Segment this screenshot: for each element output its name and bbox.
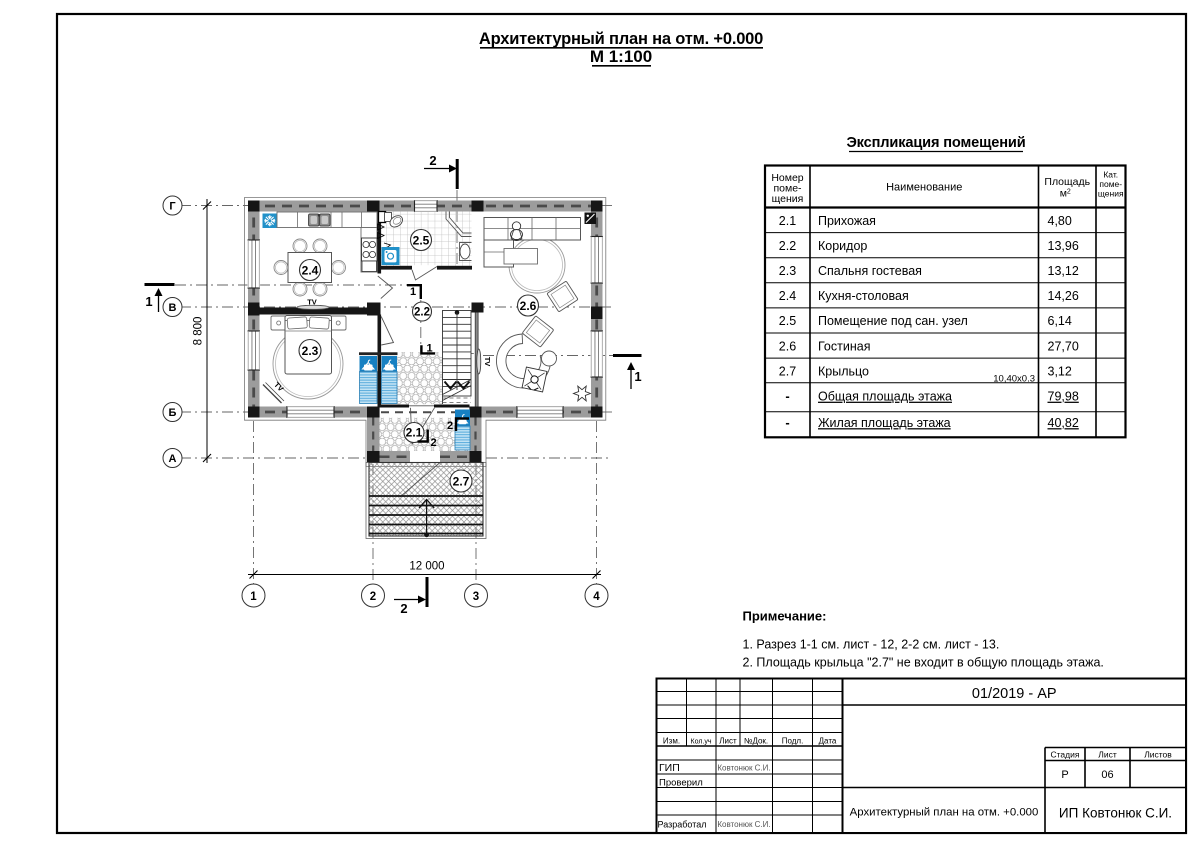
svg-text:ГИП: ГИП	[659, 762, 680, 774]
svg-text:1. Разрез 1-1 см. лист - 12, 2: 1. Разрез 1-1 см. лист - 12, 2-2 см. лис…	[743, 638, 1000, 652]
svg-text:2: 2	[429, 153, 436, 168]
svg-text:Гостиная: Гостиная	[818, 339, 870, 353]
svg-text:Ковтонюк С.И.: Ковтонюк С.И.	[717, 820, 770, 829]
svg-text:2.3: 2.3	[779, 264, 796, 278]
svg-text:13,96: 13,96	[1048, 239, 1079, 253]
svg-text:Г: Г	[169, 201, 176, 213]
svg-text:Наименование: Наименование	[886, 182, 962, 194]
svg-text:1: 1	[145, 294, 152, 309]
svg-text:TV: TV	[483, 357, 492, 367]
svg-text:поме-: поме-	[1099, 179, 1122, 189]
svg-text:Дата: Дата	[819, 737, 837, 746]
svg-text:Листов: Листов	[1144, 750, 1172, 760]
svg-text:Площадь: Площадь	[1044, 176, 1090, 188]
svg-text:3,12: 3,12	[1048, 364, 1072, 378]
svg-text:-: -	[785, 389, 789, 404]
svg-text:2: 2	[430, 437, 436, 449]
svg-text:4: 4	[593, 591, 600, 603]
svg-text:№Док.: №Док.	[744, 737, 768, 746]
svg-text:2.5: 2.5	[779, 314, 796, 328]
svg-text:Архитектурный план на отм. +0.: Архитектурный план на отм. +0.000	[479, 30, 763, 48]
svg-text:14,26: 14,26	[1048, 289, 1079, 303]
svg-text:Подл.: Подл.	[782, 737, 804, 746]
svg-text:06: 06	[1101, 769, 1113, 781]
svg-text:13,12: 13,12	[1048, 264, 1079, 278]
svg-text:-: -	[785, 415, 789, 430]
svg-text:Жилая площадь этажа: Жилая площадь этажа	[818, 416, 951, 430]
svg-text:Спальня гостевая: Спальня гостевая	[818, 264, 922, 278]
svg-text:щения: щения	[772, 193, 804, 205]
svg-text:Б: Б	[169, 407, 177, 419]
svg-text:79,98: 79,98	[1048, 390, 1079, 404]
svg-text:10,40х0.3: 10,40х0.3	[993, 374, 1035, 385]
svg-text:Кол.уч: Кол.уч	[691, 739, 712, 746]
svg-text:1: 1	[426, 343, 432, 355]
svg-text:2: 2	[447, 420, 453, 432]
svg-text:2. Площадь крыльца "2.7" не вх: 2. Площадь крыльца "2.7" не входит в общ…	[743, 656, 1104, 670]
svg-text:Кат.: Кат.	[1103, 170, 1118, 180]
svg-text:Крыльцо: Крыльцо	[818, 364, 869, 378]
svg-text:Коридор: Коридор	[818, 239, 867, 253]
svg-text:щения: щения	[1098, 189, 1124, 199]
svg-text:1: 1	[250, 591, 257, 603]
svg-text:2.2: 2.2	[779, 239, 796, 253]
svg-text:2.7: 2.7	[453, 474, 470, 488]
svg-text:2: 2	[370, 591, 376, 603]
svg-text:Примечание:: Примечание:	[743, 609, 827, 624]
svg-text:1: 1	[634, 369, 641, 384]
svg-text:2.1: 2.1	[779, 214, 796, 228]
svg-text:Разработал: Разработал	[658, 820, 707, 830]
svg-text:4,80: 4,80	[1048, 214, 1072, 228]
svg-text:А: А	[169, 453, 177, 465]
svg-text:Помещение под сан. узел: Помещение под сан. узел	[818, 314, 968, 328]
svg-text:2.1: 2.1	[406, 426, 423, 440]
svg-text:ИП Ковтонюк С.И.: ИП Ковтонюк С.И.	[1059, 806, 1172, 821]
svg-text:2.6: 2.6	[520, 299, 537, 313]
svg-text:Экспликация помещений: Экспликация помещений	[846, 135, 1025, 151]
svg-text:01/2019 - АР: 01/2019 - АР	[972, 686, 1057, 702]
svg-text:2: 2	[400, 601, 407, 616]
svg-text:27,70: 27,70	[1048, 339, 1079, 353]
svg-text:Лист: Лист	[1098, 750, 1117, 760]
svg-text:1: 1	[410, 286, 416, 298]
svg-text:8 800: 8 800	[193, 317, 205, 346]
svg-text:3: 3	[473, 591, 479, 603]
svg-text:Архитектурный план на отм. +0.: Архитектурный план на отм. +0.000	[850, 807, 1039, 819]
svg-text:2.4: 2.4	[302, 263, 319, 277]
svg-text:Общая площадь этажа: Общая площадь этажа	[818, 390, 952, 404]
svg-text:12 000: 12 000	[409, 561, 444, 573]
svg-text:2.7: 2.7	[779, 364, 796, 378]
svg-text:Проверил: Проверил	[659, 778, 703, 789]
svg-text:6,14: 6,14	[1048, 314, 1072, 328]
svg-text:В: В	[169, 302, 177, 314]
svg-text:Изм.: Изм.	[663, 737, 680, 746]
svg-text:2.5: 2.5	[413, 233, 430, 247]
svg-text:Лист: Лист	[719, 737, 737, 746]
svg-text:40,82: 40,82	[1048, 416, 1079, 430]
svg-text:2.2: 2.2	[414, 307, 430, 319]
svg-text:2.4: 2.4	[779, 289, 796, 303]
svg-text:Кухня-столовая: Кухня-столовая	[818, 289, 909, 303]
svg-text:М 1:100: М 1:100	[590, 47, 652, 66]
svg-text:2.6: 2.6	[779, 339, 796, 353]
svg-text:2.3: 2.3	[302, 344, 319, 358]
svg-text:Ковтонюк С.И.: Ковтонюк С.И.	[717, 764, 770, 773]
svg-text:Прихожая: Прихожая	[818, 214, 876, 228]
svg-text:Р: Р	[1061, 769, 1068, 781]
svg-text:Стадия: Стадия	[1051, 750, 1080, 760]
